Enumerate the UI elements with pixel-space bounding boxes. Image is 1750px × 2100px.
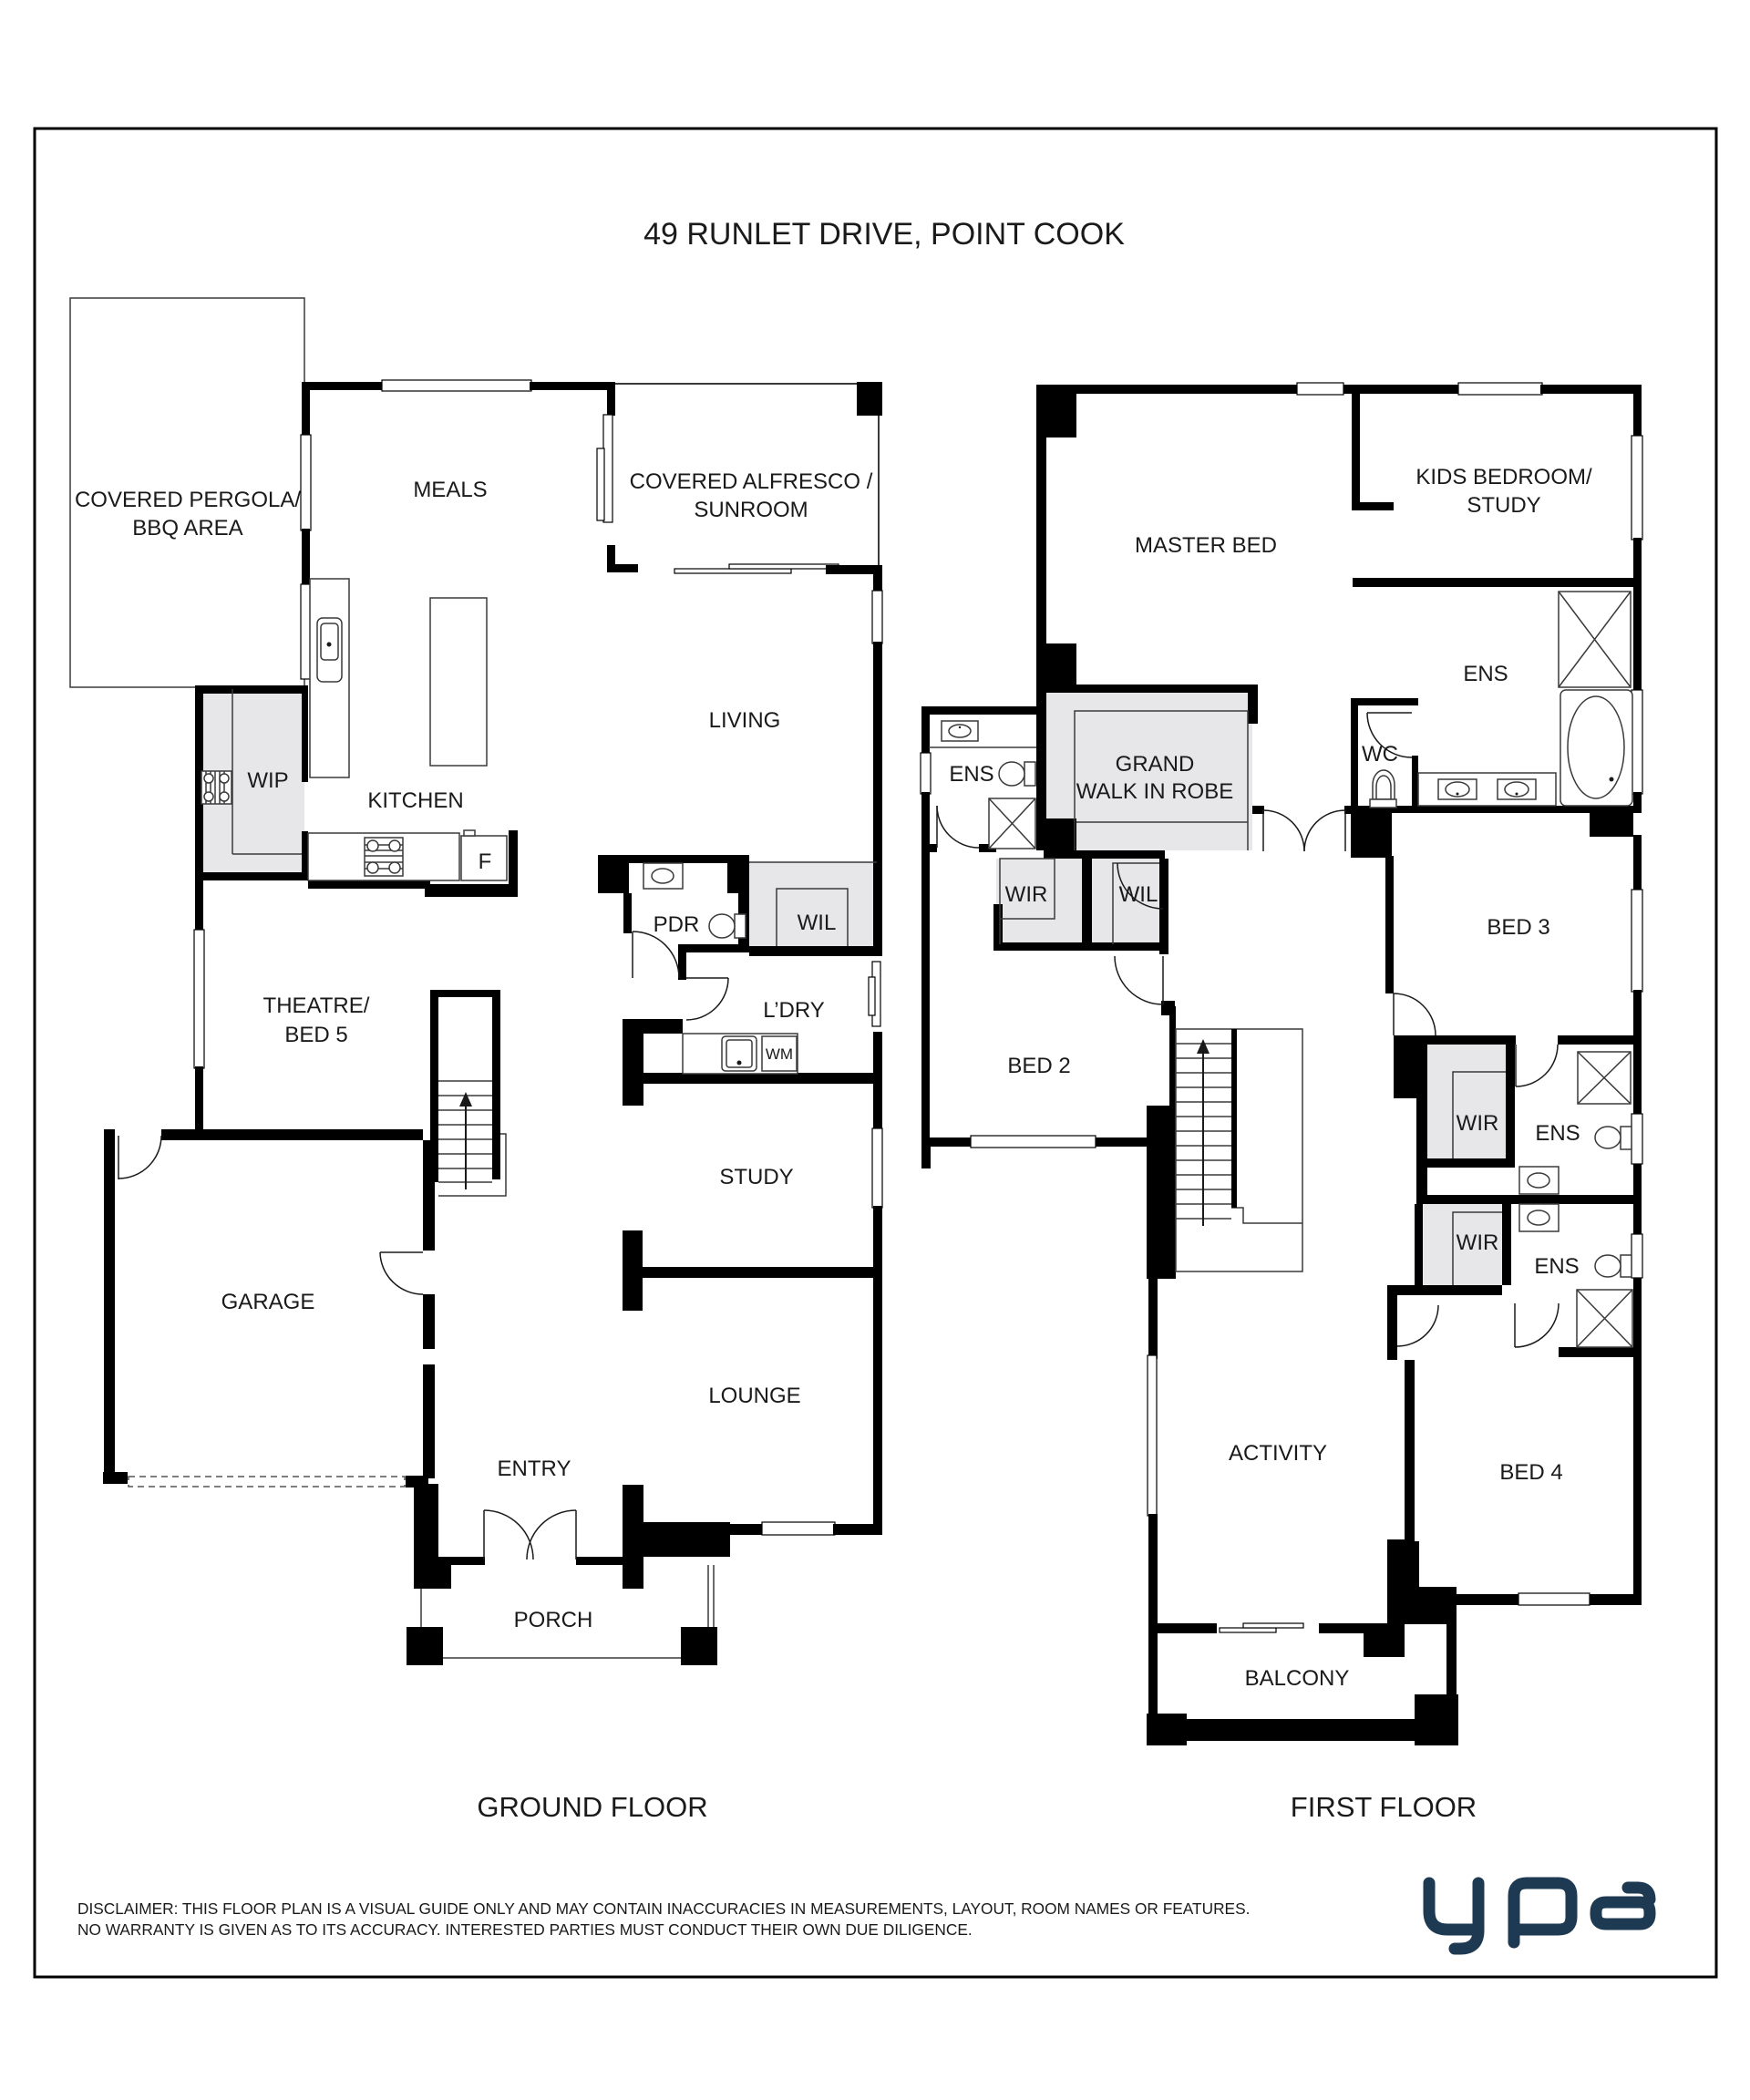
svg-text:GROUND FLOOR: GROUND FLOOR [477, 1791, 707, 1823]
svg-text:MEALS: MEALS [413, 478, 487, 502]
svg-text:GARAGE: GARAGE [221, 1290, 315, 1314]
svg-text:WIP: WIP [247, 768, 288, 793]
svg-text:ENS: ENS [1534, 1254, 1579, 1279]
svg-text:ENS: ENS [949, 762, 993, 787]
svg-text:STUDY: STUDY [719, 1165, 793, 1189]
svg-text:L’DRY: L’DRY [763, 998, 825, 1023]
svg-text:COVERED PERGOLA/: COVERED PERGOLA/ [75, 488, 301, 512]
svg-text:WIR: WIR [1457, 1111, 1499, 1136]
svg-text:KITCHEN: KITCHEN [367, 788, 463, 813]
svg-text:ACTIVITY: ACTIVITY [1229, 1441, 1327, 1466]
svg-text:LOUNGE: LOUNGE [708, 1384, 800, 1408]
svg-text:BED 3: BED 3 [1487, 915, 1549, 940]
svg-text:BED 5: BED 5 [284, 1023, 347, 1047]
svg-text:BED 4: BED 4 [1499, 1460, 1562, 1485]
svg-text:WALK IN ROBE: WALK IN ROBE [1076, 779, 1233, 804]
svg-text:WIR: WIR [1005, 882, 1048, 907]
svg-text:LIVING: LIVING [709, 708, 781, 733]
svg-text:SUNROOM: SUNROOM [694, 498, 808, 522]
svg-text:ENTRY: ENTRY [498, 1457, 571, 1481]
svg-text:PORCH: PORCH [514, 1608, 593, 1632]
svg-text:WM: WM [766, 1045, 793, 1063]
svg-text:NO WARRANTY IS GIVEN AS TO ITS: NO WARRANTY IS GIVEN AS TO ITS ACCURACY.… [77, 1920, 973, 1939]
svg-text:PDR: PDR [654, 912, 700, 937]
svg-text:ENS: ENS [1535, 1121, 1580, 1146]
svg-text:WIR: WIR [1457, 1230, 1499, 1255]
svg-text:WIL: WIL [1119, 882, 1158, 907]
svg-text:STUDY: STUDY [1467, 493, 1540, 518]
svg-text:FIRST FLOOR: FIRST FLOOR [1291, 1791, 1477, 1823]
svg-text:F: F [479, 849, 492, 874]
svg-text:DISCLAIMER: THIS FLOOR PLAN IS: DISCLAIMER: THIS FLOOR PLAN IS A VISUAL … [77, 1899, 1250, 1918]
svg-text:BBQ AREA: BBQ AREA [132, 516, 242, 540]
svg-text:GRAND: GRAND [1116, 752, 1195, 777]
svg-text:BED 2: BED 2 [1007, 1054, 1070, 1078]
svg-text:KIDS BEDROOM/: KIDS BEDROOM/ [1415, 465, 1592, 489]
svg-text:ENS: ENS [1463, 662, 1508, 686]
svg-text:BALCONY: BALCONY [1245, 1666, 1350, 1691]
svg-text:THEATRE/: THEATRE/ [263, 993, 370, 1018]
svg-text:WIL: WIL [798, 911, 837, 935]
svg-text:49 RUNLET DRIVE, POINT COOK: 49 RUNLET DRIVE, POINT COOK [643, 217, 1125, 252]
svg-text:COVERED ALFRESCO /: COVERED ALFRESCO / [630, 469, 873, 494]
svg-text:MASTER BED: MASTER BED [1135, 533, 1277, 558]
svg-text:WC: WC [1362, 742, 1398, 767]
